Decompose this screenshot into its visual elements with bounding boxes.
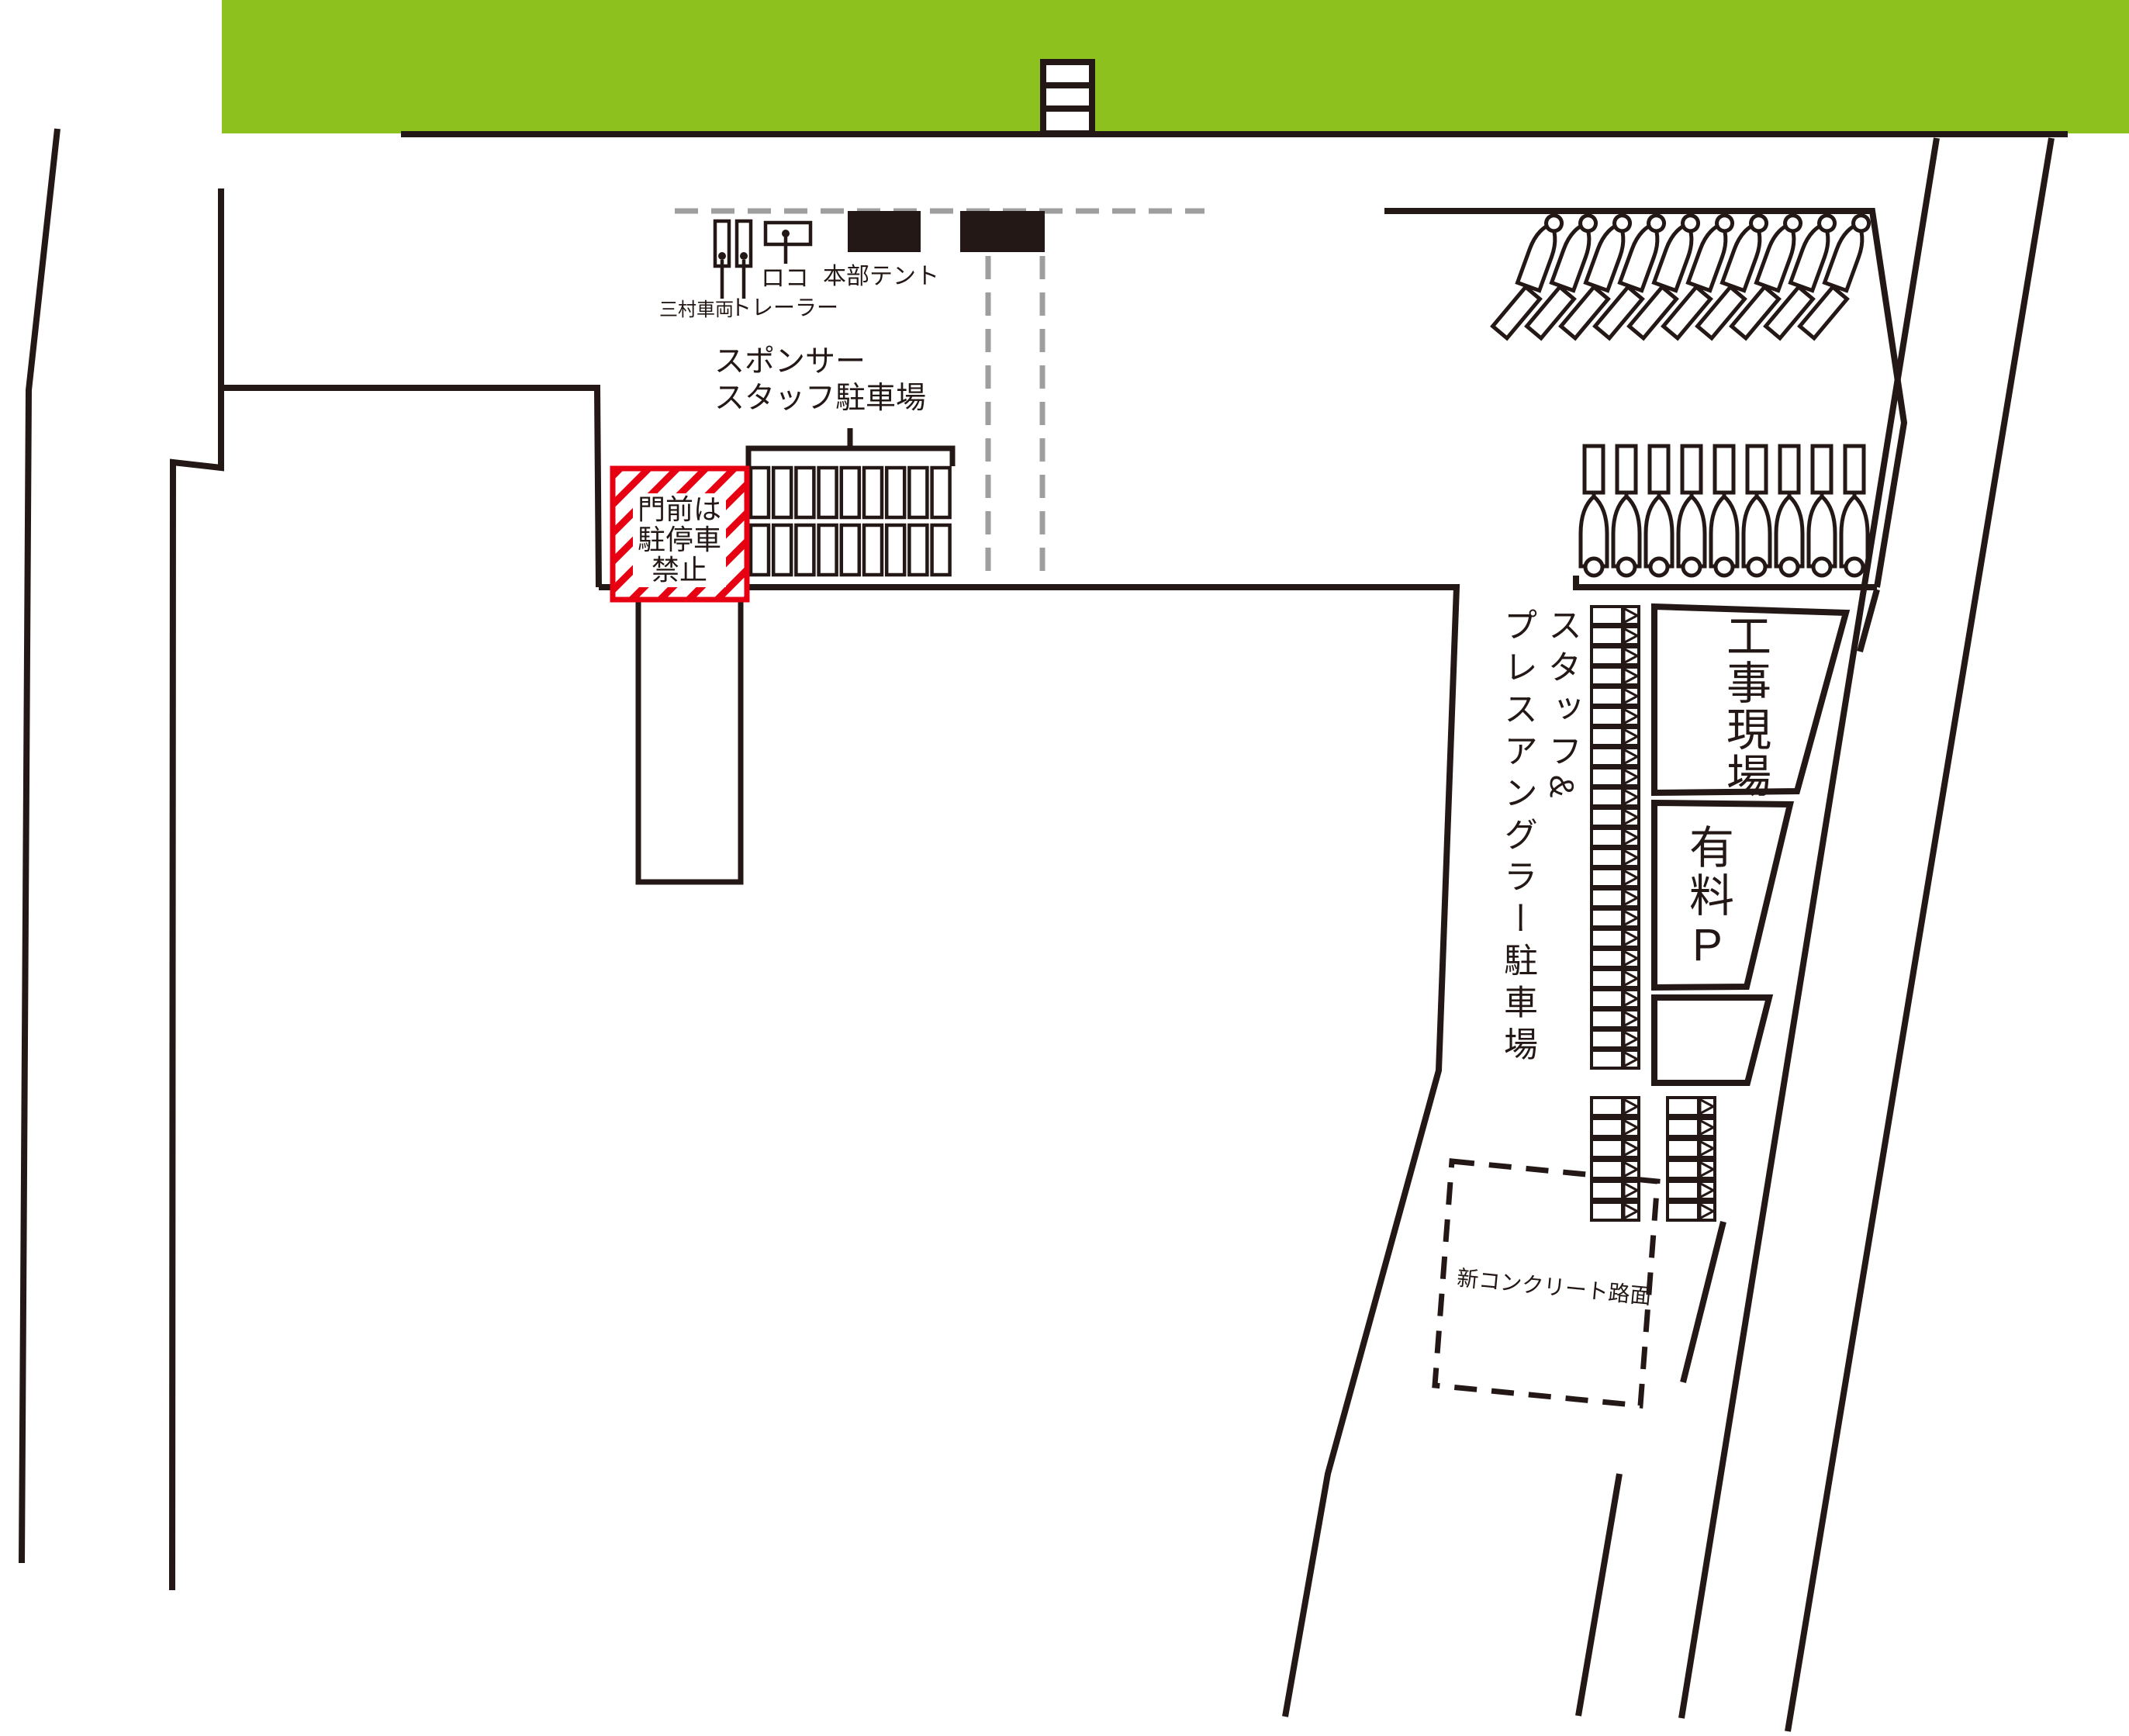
left-inner-boundary xyxy=(172,188,221,1590)
left-outer-road-edge xyxy=(22,129,57,1563)
stall-box xyxy=(1592,627,1623,645)
parking-stall xyxy=(751,525,769,575)
parking-stall xyxy=(909,525,927,575)
stall-box xyxy=(1592,1160,1623,1178)
parking-stall xyxy=(864,468,882,517)
stall-box xyxy=(1668,1119,1699,1136)
stall-box xyxy=(1668,1181,1699,1199)
staff-press-label-col1: スタッフ& xyxy=(1540,607,1584,1174)
hq-tent-label: 本部テント xyxy=(823,264,939,290)
small-lot-box xyxy=(1654,998,1769,1083)
green-field xyxy=(222,0,2129,133)
gate-access-strip xyxy=(638,587,741,882)
stall-box xyxy=(1592,909,1623,927)
stall-box xyxy=(1592,768,1623,786)
boat-trailer-icon xyxy=(1613,446,1640,576)
trailer-box xyxy=(1585,446,1603,493)
boat-wheel xyxy=(1813,558,1830,576)
parking-stall xyxy=(819,525,837,575)
trailer-box xyxy=(1845,446,1864,493)
stall-box xyxy=(1592,1181,1623,1199)
parking-stall xyxy=(887,525,904,575)
boat-wheel xyxy=(1846,558,1863,576)
stall-box xyxy=(1592,607,1623,624)
parking-stall xyxy=(842,525,859,575)
inner-road-segment-mid xyxy=(1683,1222,1723,1382)
sponsor-staff-parking-stalls xyxy=(751,468,950,575)
parking-stall-arrow xyxy=(1668,1119,1715,1136)
stall-box xyxy=(1668,1139,1699,1157)
boat-hull xyxy=(1678,496,1705,566)
boat-hull xyxy=(1776,496,1802,566)
stall-box xyxy=(1592,869,1623,887)
stall-box xyxy=(1592,647,1623,665)
parking-stall-arrow xyxy=(1592,808,1639,826)
staff-press-stall-column xyxy=(1592,607,1639,1068)
boat-hull xyxy=(1646,496,1672,566)
parking-stall xyxy=(864,525,882,575)
sponsor-bracket xyxy=(748,428,952,466)
parking-stall-arrow xyxy=(1592,1010,1639,1028)
boat-wheel xyxy=(1585,558,1602,576)
sponsor-parking-label-line2: スタッフ駐車場 xyxy=(714,381,926,417)
parking-stall xyxy=(819,468,837,517)
boat-wheel xyxy=(1650,558,1668,576)
parking-stall xyxy=(887,468,904,517)
parking-stall-arrow xyxy=(1592,647,1639,665)
boat-hull xyxy=(1841,496,1868,566)
stall-box xyxy=(1668,1160,1699,1178)
loco-label: ロコ xyxy=(761,265,809,292)
stall-box xyxy=(1668,1098,1699,1115)
mimura-vehicle-icons xyxy=(715,221,751,299)
boat-wheel xyxy=(1748,558,1765,576)
stall-box xyxy=(1592,889,1623,907)
parking-stall-arrow xyxy=(1592,707,1639,725)
boat-trailer-icon xyxy=(1678,446,1705,576)
stall-box xyxy=(1592,828,1623,846)
parking-stall-arrow xyxy=(1592,929,1639,947)
parking-stall-arrow xyxy=(1592,828,1639,846)
stall-box xyxy=(1592,1139,1623,1157)
stall-box xyxy=(1592,1050,1623,1068)
parking-stall xyxy=(932,468,950,517)
parking-stall xyxy=(842,468,859,517)
parking-stall-arrow xyxy=(1592,607,1639,624)
boat-trailer-icon xyxy=(1776,446,1802,576)
parking-stall-arrow xyxy=(1592,1139,1639,1157)
stall-box xyxy=(1592,1119,1623,1136)
boat-trailer-icon xyxy=(1711,446,1737,576)
boat-trailer-icon xyxy=(1646,446,1672,576)
mimura-vehicle-label: 三村車両 xyxy=(659,300,734,321)
parking-stall-arrow xyxy=(1592,788,1639,806)
parking-stall-arrow xyxy=(1592,1160,1639,1178)
parking-stall-arrow xyxy=(1668,1181,1715,1199)
trailer-box xyxy=(1715,446,1733,493)
stall-box xyxy=(1592,667,1623,685)
boat-hull xyxy=(1581,496,1607,566)
stall-box xyxy=(1592,970,1623,987)
parking-stall-arrow xyxy=(1668,1160,1715,1178)
parking-stall xyxy=(796,468,814,517)
parking-stall-arrow xyxy=(1592,1119,1639,1136)
parking-stall-arrow xyxy=(1592,889,1639,907)
parking-stall-arrow xyxy=(1668,1098,1715,1115)
staff-press-label-col2: プレスアングラー駐車場 xyxy=(1495,607,1540,1174)
parking-stall-arrow xyxy=(1592,1030,1639,1048)
trailer-label: トレーラー xyxy=(730,296,838,320)
trailer-box xyxy=(1747,446,1766,493)
parking-stall-arrow xyxy=(1592,949,1639,967)
parking-stall-arrow xyxy=(1592,768,1639,786)
no-parking-warning-label: 門前は 駐停車 禁止 xyxy=(633,493,726,587)
parking-stall-arrow xyxy=(1592,869,1639,887)
parking-stall-arrow xyxy=(1668,1139,1715,1157)
boat-hull xyxy=(1809,496,1835,566)
boat-trailer-icon xyxy=(1744,446,1770,576)
boat-hull xyxy=(1711,496,1737,566)
boat-trailer-icon xyxy=(1809,446,1835,576)
construction-site-label: 工事現場 xyxy=(1719,613,1769,799)
parking-stall-arrow xyxy=(1592,687,1639,705)
trailer-box xyxy=(1617,446,1636,493)
stall-box xyxy=(1592,808,1623,826)
warning-line1: 門前は xyxy=(638,495,721,525)
tent-block xyxy=(848,211,921,252)
parking-stall xyxy=(796,525,814,575)
trailer-box xyxy=(1780,446,1799,493)
sponsor-parking-label-line1: スポンサー xyxy=(714,344,926,381)
stall-box xyxy=(1668,1202,1699,1220)
trailer-area-bottom-boundary xyxy=(1576,576,1877,587)
site-map: 三村車両 トレーラー ロコ 本部テント スポンサー スタッフ駐車場 門前は 駐停… xyxy=(0,0,2129,1736)
boat-trailer-icon xyxy=(1581,446,1607,576)
boat-trailer-row-top xyxy=(1493,211,1873,338)
stall-box xyxy=(1592,687,1623,705)
parking-stall-arrow xyxy=(1668,1202,1715,1220)
trailer-box xyxy=(1650,446,1668,493)
gate-structure xyxy=(1043,62,1092,133)
paid-parking-label: 有料P xyxy=(1681,824,1732,973)
parking-stall xyxy=(932,525,950,575)
staff-press-parking-label: スタッフ& プレスアングラー駐車場 xyxy=(1495,607,1584,1174)
boat-trailer-row-bottom xyxy=(1581,446,1868,576)
stall-box xyxy=(1592,1030,1623,1048)
parking-stall-arrow xyxy=(1592,1050,1639,1068)
right-road-edge-outer xyxy=(1788,138,2051,1731)
stall-box xyxy=(1592,1202,1623,1220)
warning-line2: 駐停車 xyxy=(638,525,721,555)
trailer-box xyxy=(1813,446,1831,493)
stall-box xyxy=(1592,728,1623,745)
boat-trailer-icon xyxy=(1841,446,1868,576)
inner-road-segment-bottom xyxy=(1578,1474,1619,1716)
stall-box xyxy=(1592,949,1623,967)
parking-stall-arrow xyxy=(1592,1202,1639,1220)
trailer-box xyxy=(1682,446,1701,493)
parking-stall xyxy=(773,468,791,517)
parking-stall-arrow xyxy=(1592,627,1639,645)
map-linework xyxy=(0,0,2129,1736)
stall-box xyxy=(1592,788,1623,806)
parking-stall-arrow xyxy=(1592,748,1639,766)
parking-stall-arrow xyxy=(1592,909,1639,927)
boat-hull xyxy=(1744,496,1770,566)
parking-stall-arrow xyxy=(1592,728,1639,745)
stall-box xyxy=(1592,707,1623,725)
warning-line3: 禁止 xyxy=(638,555,721,586)
stall-box xyxy=(1592,1010,1623,1028)
parking-stall xyxy=(773,525,791,575)
hq-tent-block xyxy=(960,211,1045,252)
sponsor-parking-label: スポンサー スタッフ駐車場 xyxy=(714,344,926,417)
stall-box xyxy=(1592,929,1623,947)
sponsor-area-boundary xyxy=(221,388,599,587)
parking-stall-arrow xyxy=(1592,1098,1639,1115)
stall-box xyxy=(1592,849,1623,866)
stall-box xyxy=(1592,1098,1623,1115)
parking-stall xyxy=(751,468,769,517)
parking-stall-arrow xyxy=(1592,849,1639,866)
parking-stall-arrow xyxy=(1592,667,1639,685)
parking-stall-arrow xyxy=(1592,970,1639,987)
boat-wheel xyxy=(1618,558,1635,576)
boat-wheel xyxy=(1781,558,1798,576)
boat-wheel xyxy=(1683,558,1700,576)
loco-trailer-icon xyxy=(766,223,810,264)
stall-box xyxy=(1592,990,1623,1008)
parking-stall-arrow xyxy=(1592,1181,1639,1199)
boat-hull xyxy=(1613,496,1640,566)
boat-wheel xyxy=(1716,558,1733,576)
stall-box xyxy=(1592,748,1623,766)
parking-stall xyxy=(909,468,927,517)
parking-stall-arrow xyxy=(1592,990,1639,1008)
